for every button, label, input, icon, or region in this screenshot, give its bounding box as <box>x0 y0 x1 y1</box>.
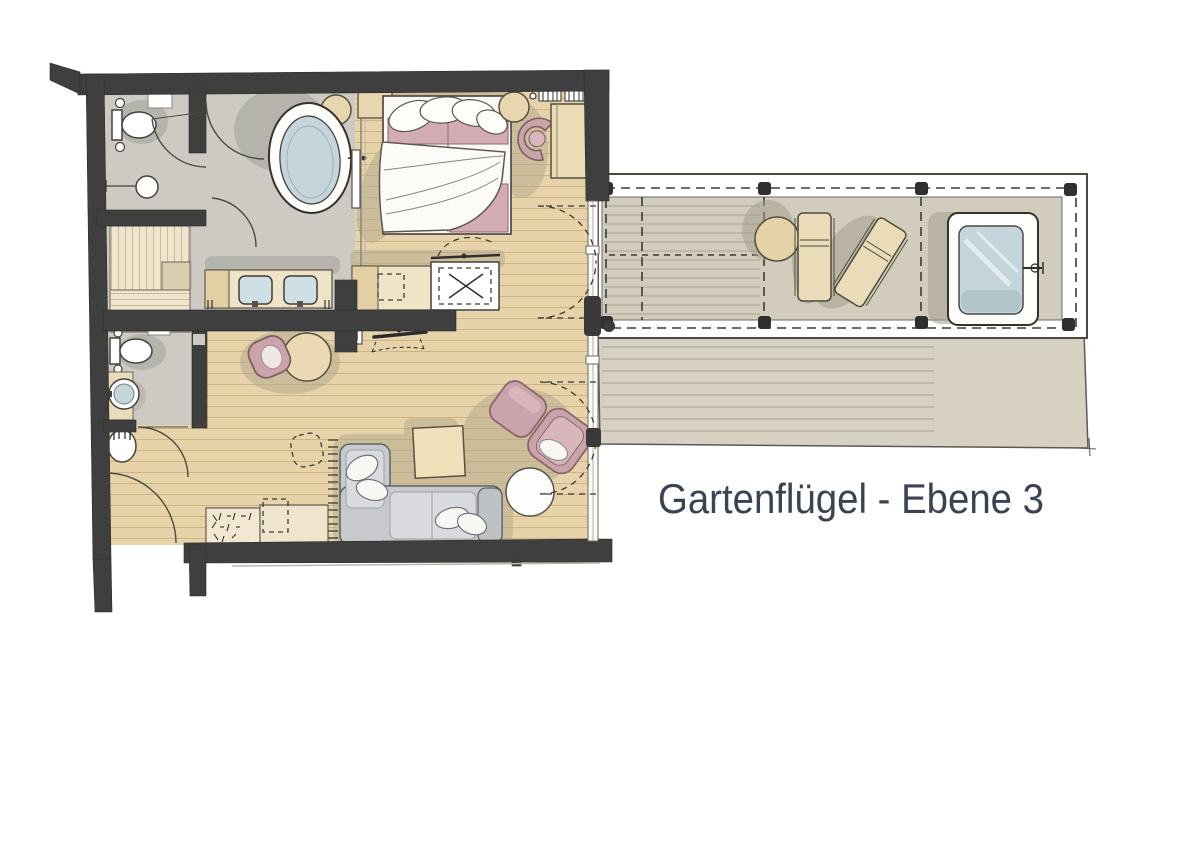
mirror <box>352 150 360 208</box>
plan-title: Gartenflügel - Ebene 3 <box>658 475 1044 522</box>
vanity-double-sink <box>205 270 332 309</box>
wall-stub-mid <box>189 545 206 596</box>
wall-wc2-east <box>192 331 207 428</box>
wall-bath-south <box>103 310 456 331</box>
wall-bottom <box>184 539 612 563</box>
radiator-icon <box>530 91 587 101</box>
terrace <box>598 174 1096 456</box>
facade-post-terrace <box>603 320 615 332</box>
pouf <box>499 92 529 122</box>
desk <box>551 104 588 178</box>
shaft-box <box>431 262 499 310</box>
wall-top <box>78 70 609 95</box>
wall-stub-left <box>93 559 112 612</box>
wc1-shelf <box>148 94 172 108</box>
sun-lounger-1 <box>795 213 834 301</box>
facade-post-1 <box>584 296 601 336</box>
floor-plan-canvas: Gartenflügel - Ebene 3 <box>0 0 1200 849</box>
hall-basin <box>108 430 136 462</box>
floor-plan: Gartenflügel - Ebene 3 <box>0 0 1200 849</box>
wall-wc1 <box>189 88 206 153</box>
outdoor-table <box>755 217 799 261</box>
facade-post-2 <box>586 428 601 447</box>
double-bed <box>379 95 511 234</box>
hot-tub <box>948 213 1043 325</box>
wall-right-top <box>584 70 609 201</box>
wall-wc1-south <box>97 210 206 226</box>
wall-wc2-south <box>103 420 136 432</box>
side-table <box>506 468 554 516</box>
wall-top-overshoot <box>50 63 80 94</box>
coffee-table <box>413 426 466 479</box>
